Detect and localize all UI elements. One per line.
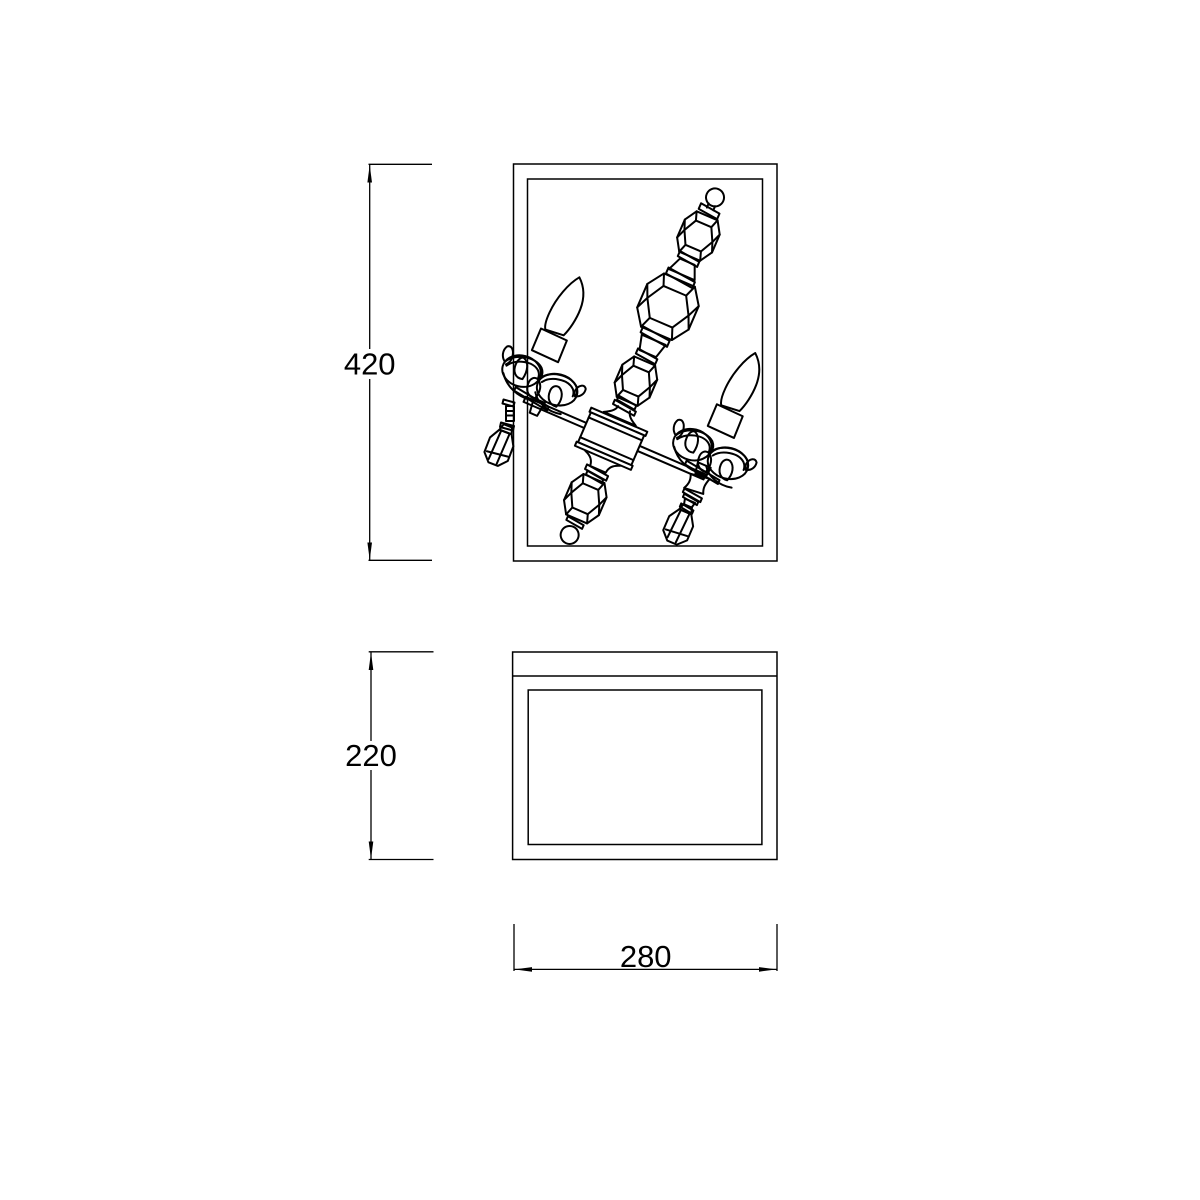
svg-text:420: 420 <box>344 347 396 382</box>
svg-text:220: 220 <box>345 738 397 773</box>
svg-text:280: 280 <box>620 939 672 974</box>
